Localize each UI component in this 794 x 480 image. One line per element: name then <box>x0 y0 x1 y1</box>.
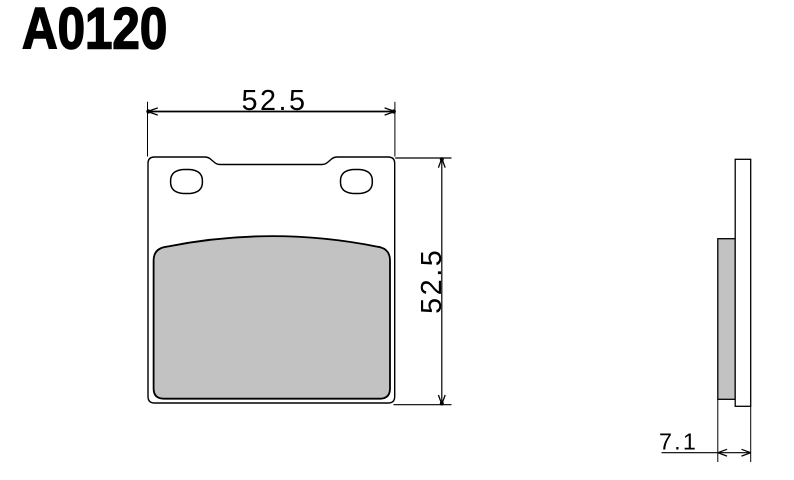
svg-text:52.5: 52.5 <box>416 248 448 314</box>
svg-text:7.1: 7.1 <box>659 429 698 455</box>
svg-text:52.5: 52.5 <box>241 85 307 117</box>
svg-text:A0120: A0120 <box>22 0 167 61</box>
